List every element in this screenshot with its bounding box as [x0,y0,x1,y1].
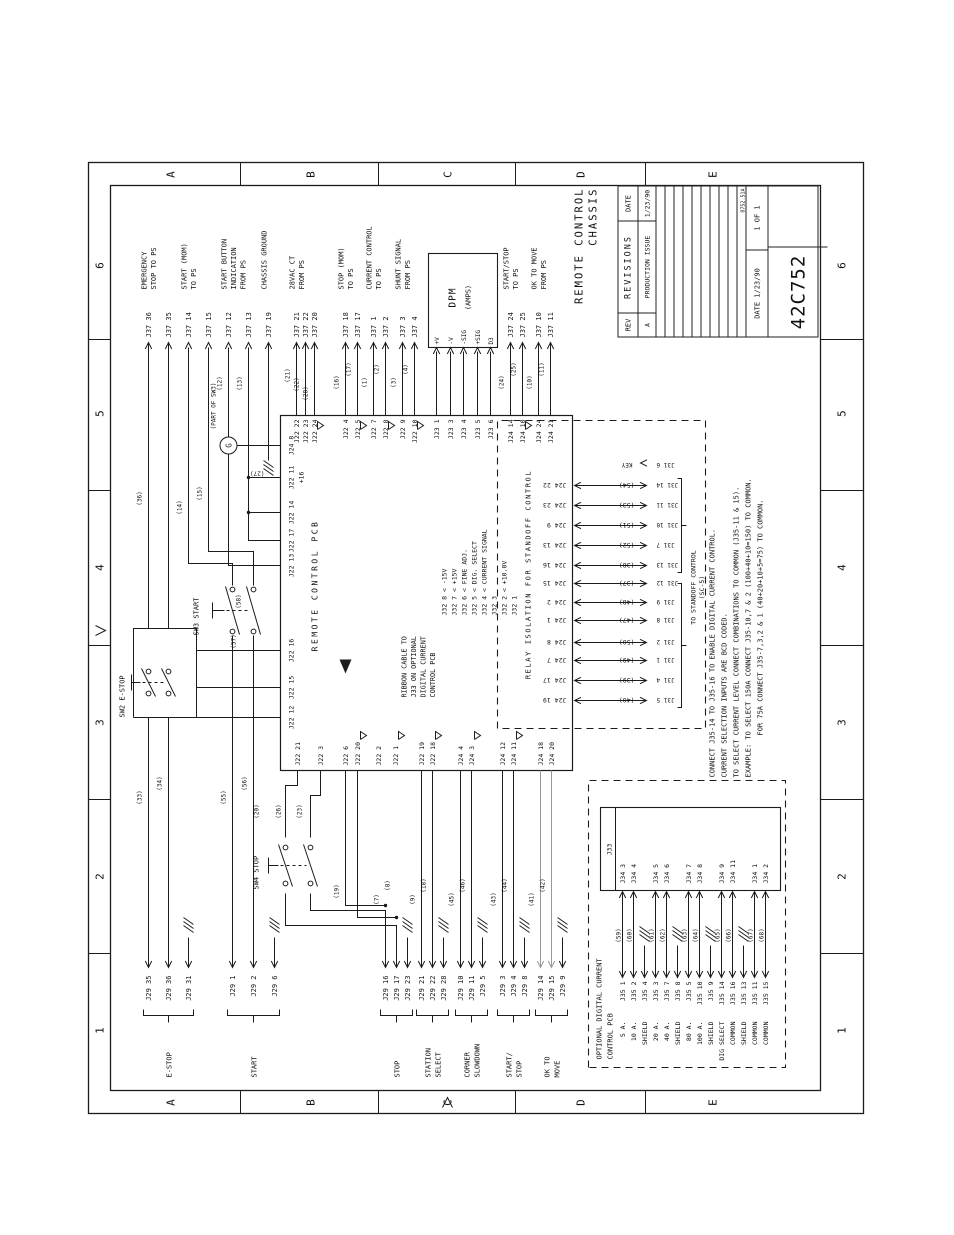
zone-number: 4 [93,563,106,570]
ground-icon [269,925,279,932]
j35-pin-label: J35 10 [696,981,704,1005]
ps-desc: FROM PS [298,259,306,289]
field-group-label: SELECT [434,1051,442,1077]
zone-letter: E [706,1099,719,1106]
ps-desc: SHUNT SIGNAL [394,238,402,289]
note-line: EXAMPLE: TO SELECT 150A CONNECT J35-10,7… [744,478,752,777]
wire-number: (4) [402,364,409,375]
j31-pin-label: J31 8 [656,616,674,623]
wire-number: (16) [333,375,340,389]
j33-label: J33 [605,843,613,855]
ps-pin-label: J37 21 [293,312,301,337]
zone-number: 2 [835,873,848,880]
ps-pin-label: J37 2 [382,316,390,337]
zone-number: 4 [835,563,848,570]
drawing-landscape-layer: AABBCCDDEE665544332211REMOTE CONTROL PCB… [0,0,954,1235]
zone-letter: C [441,171,454,178]
current-level-label: 5 A. [619,1021,627,1037]
ps-pin-label: J37 18 [342,312,350,337]
field-group-label: STOP [515,1060,523,1077]
field-group-label: SLOWDOWN [473,1043,481,1077]
revision-date: 1/23/90 [638,186,655,220]
wire-number: (13) [236,376,243,390]
j24-pin-label: J24 9 [546,521,566,529]
j24-pin-label: J24 13 [542,541,566,549]
signal-dir-icon [317,421,323,429]
pcb-pin-label: J22 18 [429,741,437,765]
j34-pin-label: J34 8 [696,863,704,883]
wire-number: (8) [384,880,391,891]
field-pin-label: J29 21 [418,975,426,1000]
current-level-label: COMMON [751,1021,759,1045]
j34-pin-label: J34 6 [663,863,671,883]
field-pin-label: J29 4 [510,975,518,996]
current-level-label: COMMON [729,1021,737,1045]
pcb-label: REMOTE CONTROL PCB [310,519,319,651]
sw3-label: SW3 START [192,596,200,635]
j24-pin-label: J24 17 [542,676,566,684]
ps-desc: STOP TO PS [150,247,158,289]
ps-desc: START/STOP [502,247,510,289]
ps-desc: CURRENT CONTROL [365,226,373,289]
pcb-pin-label: J22 19 [418,741,426,765]
j31-pin-label: J31 6 [656,461,674,468]
j34-pin-label: J34 11 [729,859,737,883]
j24-pin-label: J24 15 [542,579,566,587]
ps-pin-label: J37 36 [145,312,153,337]
j34-pin-label: J34 7 [685,863,693,883]
ground-icon [183,921,193,928]
wire-number: (47) [618,616,634,624]
j24-pin-label: J24 22 [542,481,566,489]
j31-pin-label: J31 12 [656,579,678,586]
dpm-title: DPM [447,287,458,307]
j31-pin-label: J31 7 [656,541,674,548]
j35-pin-label: J35 15 [762,981,770,1005]
ground-icon [557,925,567,932]
ground-icon [519,917,529,924]
ps-pin-label: J37 24 [507,312,515,337]
empty-revision-row [701,186,710,336]
ground-icon [557,917,567,924]
ribbon-cable-arrow-icon [339,659,351,673]
wire-number: (56) [241,776,248,790]
empty-revision-row [665,186,674,336]
zone-number: 6 [835,262,848,269]
ps-pin-label: J37 35 [165,312,173,337]
field-pin-label: J29 28 [440,975,448,1000]
wire-number: (2) [373,364,380,375]
j34-pin-label: J34 1 [751,863,759,883]
field-pin-label: J29 2 [250,975,258,996]
signal-dir-icon [417,421,423,429]
wire-number: (52) [618,541,634,549]
ps-pin-label: J37 12 [225,312,233,337]
dpm-pin-label: -SIG [461,329,468,344]
ps-desc: CHASSIS GROUND [260,230,268,289]
j31-pin-label: J31 1 [656,656,674,663]
pcb-pin-label: J22 2 [375,745,383,765]
ground-icon [519,925,529,932]
signal-dir-icon [516,731,522,739]
wire-number: (48) [618,598,634,606]
field-group-label: START [250,1055,258,1077]
signal-dir-icon [388,421,394,429]
pcb-pin-label: J24 20 [548,741,556,765]
pcb-pin-label: J22 14 [287,500,295,524]
field-pin-label: J29 36 [165,975,173,1000]
ps-desc: TO PS [190,268,198,289]
wire-number: (42) [539,878,546,892]
key-label: KEY [621,461,632,468]
ps-pin-label: J37 3 [399,316,407,337]
pcb-pin-label: J24 4 [457,745,465,765]
wire-number: (1) [361,377,368,388]
wire-number: (14) [176,500,183,514]
drawing-title-line1: REMOTE CONTROL [572,187,586,375]
wire-number: (25) [510,362,517,376]
wire-number: (12) [216,376,223,390]
ground-icon [738,930,748,937]
pcb-pin-label: J24 3 [468,745,476,765]
note-line: CONNECT J35-14 TO J35-16 TO ENABLE DIGIT… [708,528,716,777]
relay-label: RELAY ISOLATION FOR STANDOFF CONTROL [524,469,532,678]
wire-number: (51) [618,521,634,529]
j35-pin-label: J35 3 [652,981,660,1001]
ps-desc: FROM PS [540,259,548,289]
ground-icon [269,917,279,924]
contact-icon [308,881,313,886]
zone-number: 1 [835,1027,848,1034]
doc-code: 8752.51A [740,188,746,212]
net-label: +16 [297,471,305,483]
wire-number: (41) [528,892,535,906]
wire-number: (61) [648,928,655,942]
wire-number: (67) [747,928,754,942]
ribbon-note: RIBBON CABLE TO [400,636,408,697]
field-pin-label: J29 22 [429,975,437,1000]
optional-pcb-label: OPTIONAL DIGITAL CURRENT [595,957,603,1059]
field-pin-label: J29 6 [271,975,279,996]
field-pin-label: J29 23 [404,975,412,1000]
wire [248,347,280,540]
empty-revision-row [656,186,665,336]
blank-cell [768,186,827,246]
zone-number: 5 [93,410,106,417]
wire-number: (50) [618,638,634,646]
pcb-pin-label: J22 4 [342,419,350,439]
ground-icon [402,925,412,932]
standoff-label: (SC-5) [698,575,706,598]
zone-number: 1 [93,1027,106,1034]
current-level-label: 40 A. [663,1021,671,1041]
j24-pin-label: J24 19 [542,696,566,704]
ps-desc: START (MOM) [180,243,188,289]
wire-number: (37) [618,579,634,587]
empty-revision-row [692,186,701,336]
drawing-title-line2: CHASSIS [586,187,600,375]
empty-revision-row [683,186,692,336]
contact-icon [230,629,235,634]
ground-icon [738,934,748,941]
ps-desc: STOP (MOM) [337,247,345,289]
wire-number: (27) [250,469,264,476]
pcb-pin-label: J22 3 [317,745,325,765]
contact-icon [283,881,288,886]
zone-letter: E [706,171,719,178]
ground-icon [438,921,448,928]
contact-icon [230,587,235,592]
wire-number: (62) [659,928,666,942]
pcb-pin-label: J22 23 [302,419,310,443]
pcb-pin-label: J22 11 [287,465,295,489]
pcb-pin-label: J24 18 [537,741,545,765]
zone-number: 3 [835,719,848,726]
wire-number: (45) [448,892,455,906]
j31-pin-label: J31 14 [656,481,678,488]
j35-pin-label: J35 4 [641,981,649,1001]
group-bracket [535,1009,567,1015]
j34-pin-label: J34 5 [652,863,660,883]
ground-icon [738,926,748,933]
pcb-pin-label: J22 20 [354,741,362,765]
pcb-pin-label: J23 5 [474,419,482,439]
current-level-label: COMMON [762,1021,770,1045]
ps-pin-label: J37 13 [245,312,253,337]
pcb-pin-label: J23 4 [460,419,468,439]
note-line: FOR 75A CONNECT J35-7,3,2 & 1 (40+20+10+… [756,499,764,735]
pcb-pin-label: J22 21 [294,741,302,765]
field-group-label: STOP [393,1060,401,1077]
pcb-pin-label: J24 21 [547,419,555,443]
j34-pin-label: J34 3 [619,863,627,883]
ps-desc: TO PS [375,268,383,289]
wire-number: (22) [293,377,300,391]
wire-number: (26) [275,804,282,818]
wire [133,628,196,717]
j24-pin-label: J24 2 [546,598,566,606]
j24-pin-label: J24 8 [546,638,566,646]
field-pin-label: J29 1 [229,975,237,996]
pcb-pin-label: J24 24 [535,419,543,443]
ps-pin-label: J37 15 [205,312,213,337]
ground-icon [402,921,412,928]
ground-icon [477,921,487,928]
j32-pin-label: J32 7 < +15V [450,568,458,615]
titleblock-date: DATE 1/23/90 [746,249,767,336]
ps-desc: START BUTTON [220,238,228,289]
ps-desc: FROM PS [404,259,412,289]
ground-icon [557,921,567,928]
wire-number: (40) [618,696,634,704]
j31-pin-label: J31 11 [656,501,678,508]
note-line: CURRENT SELECTION INPUTS ARE BCD CODED. [720,613,728,777]
wire-number: (28) [302,386,309,400]
ground-icon [672,934,682,941]
center-mark-icon [95,625,105,635]
j31-pin-label: J31 2 [656,638,674,645]
wire [285,770,297,837]
current-level-label: 10 A. [630,1021,638,1041]
title-block: REV REVISIONS DATE A PRODUCTION ISSUE 1/… [617,185,818,337]
wire-number: (55) [220,790,227,804]
contact-icon [251,587,256,592]
wire-number: (17) [345,362,352,376]
wire-number: (63) [681,928,688,942]
wire-number: (3) [390,377,397,388]
ribbon-note: CONTROL PCB [429,652,437,697]
j34-pin-label: J34 4 [630,863,638,883]
ps-pin-label: J37 4 [411,316,419,337]
field-pin-label: J29 5 [479,975,487,996]
drawing-number: 42C752 [768,246,827,336]
ps-desc: 28VAC CT [288,254,296,289]
dpm-pin-label: -V [448,336,455,344]
ps-pin-label: J37 11 [547,312,555,337]
field-pin-label: J29 31 [185,975,193,1000]
field-group-label: START/ [505,1052,513,1077]
zone-number: 3 [93,719,106,726]
dpm-pin-label: +SIG [475,329,482,344]
contact-icon [308,845,313,850]
j32-pin-label: J32 3 [490,595,498,615]
ground-icon [519,921,529,928]
j31-pin-label: J31 5 [656,696,674,703]
wire-number: (19) [333,884,340,898]
zone-letter: B [304,170,317,177]
contact-icon [146,691,151,696]
j31-pin-label: J31 4 [656,676,674,683]
signal-dir-icon [435,731,441,739]
wire-number: (58) [235,594,242,608]
pcb-pin-label: J23 3 [447,419,455,439]
group-bracket [227,1009,279,1015]
contact-blade [246,586,260,634]
j35-pin-label: J35 8 [674,981,682,1001]
schematic-page: AABBCCDDEE665544332211REMOTE CONTROL PCB… [0,0,954,1235]
wire-number: (46) [459,878,466,892]
wire-number: (39) [618,676,634,684]
wire-number: (10) [526,375,533,389]
pcb-pin-label: J22 17 [287,528,295,552]
ground-icon [672,930,682,937]
revision-desc: PRODUCTION ISSUE [638,220,655,312]
group-bracket [497,1009,529,1015]
wire-number: (53) [618,501,634,509]
pcb-pin-label: J22 7 [370,419,378,439]
wire-number: (54) [618,481,634,489]
empty-revision-row [710,186,719,336]
ps-pin-label: J37 20 [311,312,319,337]
j32-pin-label: J32 8 < -15V [440,568,448,615]
wire-number: (21) [284,368,291,382]
current-level-label: 80 A. [685,1021,693,1041]
zone-letter: A [164,170,177,177]
sw2-label: SW2 E-STOP [118,675,126,717]
j32-pin-label: J32 6 < FINE ADJ. [460,548,468,615]
wire-number: (9) [409,894,416,905]
wire-number: (60) [626,928,633,942]
wire-number: (15) [196,486,203,500]
current-level-label: SHIELD [707,1021,715,1045]
j35-pin-label: J35 1 [619,981,627,1001]
ps-pin-label: J37 1 [370,316,378,337]
ribbon-note: DIGITAL CURRENT [419,636,427,697]
current-level-label: 100 A. [696,1021,704,1044]
ps-desc: EMERGENCY [140,250,148,289]
group-bracket [380,1009,412,1015]
j32-pin-label: J32 5 < DIG. SELECT [470,541,478,615]
contact-icon [166,691,171,696]
wire-number: (23) [296,804,303,818]
j35-pin-label: J35 16 [729,981,737,1005]
zone-number: 6 [93,262,106,269]
ground-icon [263,460,273,467]
wire-number: (24) [498,375,505,389]
ps-pin-label: J37 17 [354,312,362,337]
sheet-number: 1 OF 1 [746,186,767,249]
revisions-header: REVISIONS [618,220,637,312]
ps-pin-label: J37 19 [265,312,273,337]
ground-icon [183,925,193,932]
j35-pin-label: J35 13 [740,981,748,1005]
j32-pin-label: J32 4 < CURRENT SIGNAL [480,529,488,615]
zone-letter: D [574,171,587,178]
zone-letter: A [164,1098,177,1105]
contact-icon [283,845,288,850]
signal-dir-icon [360,731,366,739]
current-level-label: 20 A. [652,1021,660,1041]
wire-number: (20) [253,804,260,818]
field-pin-label: J29 3 [499,975,507,996]
pcb-pin-label: J22 6 [342,745,350,765]
field-group-label: E-STOP [165,1052,173,1077]
ps-desc: FROM PS [239,259,247,289]
pcb-pin-label: J22 12 [287,705,295,729]
j35-pin-label: J35 7 [663,981,671,1001]
field-group-label: CORNER [463,1051,471,1077]
wire-number: (34) [156,776,163,790]
pcb-pin-label: J23 1 [433,419,441,439]
field-pin-label: J29 35 [145,975,153,1000]
j35-pin-label: J35 2 [630,981,638,1001]
ps-desc: TO PS [512,268,520,289]
ground-icon [705,930,715,937]
ground-icon [639,934,649,941]
date-col-header: DATE [618,186,637,220]
j24-pin-label: J24 1 [546,616,566,624]
sw4-label: SW4 STOP [252,855,260,889]
wire-number: (57) [230,634,237,648]
zone-letter: B [304,1098,317,1105]
wire-number: (43) [490,892,497,906]
ground-icon [183,917,193,924]
field-pin-label: J29 9 [559,975,567,996]
ground-icon [477,925,487,932]
signal-dir-icon [398,731,404,739]
signal-dir-icon [525,421,531,429]
ps-pin-label: J37 14 [185,312,193,337]
ps-pin-label: J37 25 [519,312,527,337]
arrowhead-icon [640,459,647,465]
contact-icon [251,629,256,634]
note-line: TO SELECT CURRENT LEVEL CONNECT COMBINAT… [732,486,740,777]
pcb-pin-label: J24 11 [510,741,518,765]
wire-number: (65) [714,928,721,942]
wire-number: (33) [136,790,143,804]
ground-icon [269,921,279,928]
pcb-pin-label: J24 8 [287,435,295,455]
